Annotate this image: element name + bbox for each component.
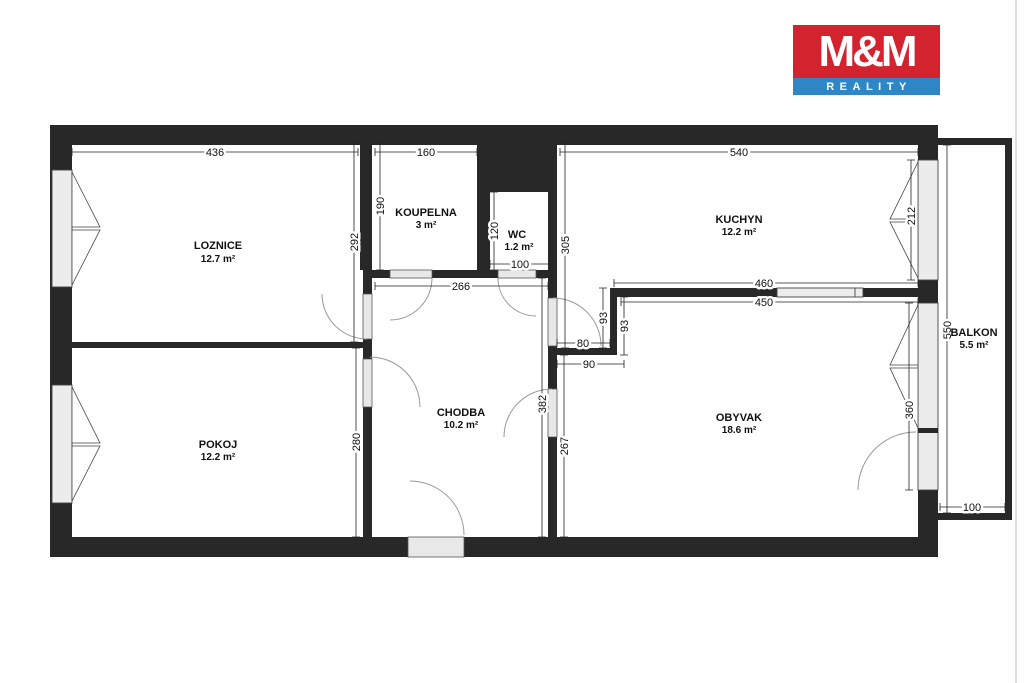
dim-wc-width: 100	[490, 259, 550, 271]
svg-text:360: 360	[904, 401, 916, 419]
dim-koupelna-height: 190	[375, 143, 387, 270]
room-label-chodba: CHODBA	[437, 407, 485, 419]
svg-text:382: 382	[537, 395, 549, 413]
room-label-loznice: LOZNICE	[194, 240, 242, 252]
door-balkon-icon	[858, 432, 916, 490]
svg-text:436: 436	[206, 147, 224, 159]
logo-mm-text: M&M	[793, 25, 940, 78]
dim-passage-outer: 90	[557, 359, 624, 371]
svg-text:100: 100	[511, 259, 529, 271]
room-label-obyvak: OBYVAK	[716, 412, 762, 424]
room-label-balkon: BALKON	[950, 327, 997, 339]
svg-text:93: 93	[598, 312, 610, 324]
dim-wc-height: 120	[489, 192, 501, 270]
walls	[50, 125, 1012, 557]
door-kuchyn-icon	[548, 298, 557, 346]
dim-obyvak-top-inner: 450	[621, 297, 918, 309]
room-area-loznice: 12.7 m²	[201, 254, 236, 265]
room-label-kuchyn: KUCHYN	[715, 214, 762, 226]
room-area-pokoj: 12.2 m²	[201, 452, 236, 463]
mm-reality-logo: M&M REALITY	[793, 25, 940, 95]
svg-text:292: 292	[349, 233, 361, 251]
dim-pokoj-height: 280	[351, 348, 363, 537]
dim-kuchyn-height: 305	[560, 143, 572, 348]
room-area-kuchyn: 12.2 m²	[722, 227, 757, 238]
svg-text:540: 540	[730, 147, 748, 159]
window-loznice-icon	[52, 170, 72, 287]
window-pokoj-icon	[52, 385, 72, 503]
dim-loznice-width: 436	[72, 147, 358, 159]
room-labels: LOZNICE 12.7 m² KOUPELNA 3 m² WC 1.2 m² …	[194, 207, 998, 463]
dim-koupelna-width: 160	[375, 147, 477, 159]
dim-balkon-width: 100	[940, 502, 1005, 514]
windows	[52, 160, 938, 503]
door-koupelna-icon	[390, 270, 432, 278]
doors	[322, 270, 916, 557]
svg-text:212: 212	[906, 207, 918, 225]
dimensions: 436 160 540 190 292 120	[72, 143, 1005, 537]
window-hatch-icon	[777, 288, 863, 297]
svg-text:190: 190	[375, 197, 387, 215]
door-wc-icon	[498, 270, 536, 278]
floorplan-drawing: 436 160 540 190 292 120	[0, 0, 1024, 683]
svg-text:266: 266	[452, 281, 470, 293]
dim-loznice-height: 292	[349, 143, 361, 342]
room-area-wc: 1.2 m²	[505, 242, 535, 253]
door-pokoj-icon	[363, 359, 372, 407]
dim-passage-depth-a: 93	[598, 288, 610, 348]
floorplan-page: 436 160 540 190 292 120	[0, 0, 1024, 683]
svg-text:267: 267	[559, 437, 571, 455]
window-kuchyn-icon	[918, 160, 938, 280]
svg-text:80: 80	[577, 338, 589, 350]
door-loznice-icon	[363, 294, 372, 339]
room-area-obyvak: 18.6 m²	[722, 425, 757, 436]
dim-chodba-height: 382	[537, 278, 549, 537]
svg-text:460: 460	[755, 278, 773, 290]
svg-text:120: 120	[489, 222, 501, 240]
dim-chodba-width: 266	[375, 281, 548, 293]
dim-obyvak-left-height: 267	[559, 355, 571, 537]
svg-text:450: 450	[755, 297, 773, 309]
svg-text:280: 280	[351, 433, 363, 451]
svg-text:305: 305	[560, 236, 572, 254]
svg-text:100: 100	[963, 502, 981, 514]
svg-text:93: 93	[619, 320, 631, 332]
room-label-wc: WC	[508, 229, 526, 241]
svg-text:90: 90	[583, 359, 595, 371]
logo-reality-text: REALITY	[793, 78, 940, 95]
room-area-koupelna: 3 m²	[416, 220, 437, 231]
room-label-pokoj: POKOJ	[199, 439, 238, 451]
room-area-chodba: 10.2 m²	[444, 420, 479, 431]
room-area-balkon: 5.5 m²	[960, 340, 990, 351]
dim-kuchyn-width: 540	[560, 147, 918, 159]
window-obyvak-icon	[918, 303, 938, 490]
svg-text:160: 160	[417, 147, 435, 159]
door-entrance-icon	[408, 537, 464, 557]
room-label-koupelna: KOUPELNA	[395, 207, 457, 219]
door-obyvak-icon	[548, 389, 557, 437]
